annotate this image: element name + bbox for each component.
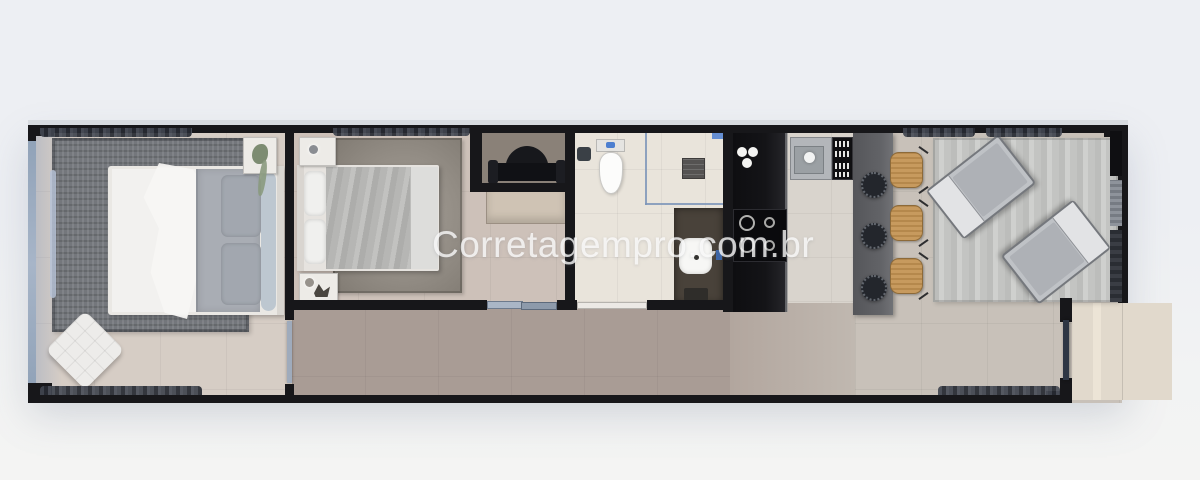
shower-glass-vertical <box>645 133 647 205</box>
bathroom-door <box>577 302 647 309</box>
bedroom1-headboard <box>277 166 284 315</box>
floor-plan-render: Corretagempro.com.br <box>0 0 1200 480</box>
right-wall-unit-bottom <box>1110 230 1122 302</box>
toilet-bowl <box>599 152 623 194</box>
living-curtain-bottom <box>938 386 1060 395</box>
terrace-door-stub-bottom <box>1060 378 1072 403</box>
bedroom2-sliding-door-pane1 <box>487 301 523 309</box>
bedroom1-curtain-top <box>40 128 192 137</box>
kitchen-lower-floor <box>730 303 855 403</box>
bedroom1-pillow-bottom <box>221 243 261 305</box>
oven-grate-4 <box>835 172 850 177</box>
oven-grate-3 <box>835 163 850 169</box>
plate-1 <box>737 147 747 157</box>
terrace-seam <box>1122 303 1123 400</box>
bedroom2-wardrobe <box>486 190 566 224</box>
hallway-floor <box>292 303 730 403</box>
terrace-stripe <box>1093 303 1101 400</box>
wall-hall-segment-a <box>292 300 487 310</box>
bedroom1-pillow-top <box>221 175 261 237</box>
bedroom2-lamp-bottom <box>305 278 314 287</box>
wall-bottom <box>28 395 1072 403</box>
bedroom2-headboard <box>297 165 304 271</box>
living-curtain-top-b <box>986 128 1062 137</box>
wall-left-window <box>28 125 36 403</box>
desk-chair-seat <box>492 163 562 181</box>
right-wall-unit-top <box>1110 131 1122 176</box>
bar-stool-1 <box>861 172 887 198</box>
wicker-chair-1 <box>890 152 923 188</box>
living-curtain-top-a <box>903 128 975 137</box>
wicker-chair-3 <box>890 258 923 294</box>
bedroom1-curtain-bottom <box>40 386 202 395</box>
terrace-door-stub-top <box>1060 298 1072 322</box>
watermark-text: Corretagempro.com.br <box>432 224 814 266</box>
terrace-door <box>1063 320 1069 380</box>
wall-bathroom-kitchen <box>723 125 733 312</box>
wicker-chair-2 <box>890 205 923 241</box>
bar-stool-3 <box>861 275 887 301</box>
plate-2 <box>748 147 758 157</box>
wall-bedroom1-divider-lower <box>285 384 294 403</box>
shower-glass-horizontal <box>645 203 725 205</box>
bedroom2-duvet <box>326 167 412 269</box>
plate-3 <box>742 158 752 168</box>
right-wall-unit-mid <box>1110 180 1122 226</box>
desk-chair-armrest-left <box>488 160 498 184</box>
bedroom1-curtain-left <box>50 170 56 298</box>
bar-stool-2 <box>861 223 887 249</box>
bedroom2-curtain-top <box>333 128 470 136</box>
bedroom1-bolster <box>261 172 276 311</box>
bedroom2-sliding-door-pane2 <box>521 302 557 310</box>
wall-bedroom1-divider-upper <box>285 125 294 320</box>
bedroom2-pillow-bottom <box>304 219 326 264</box>
wall-hall-segment-c <box>647 300 730 310</box>
wall-niche-vertical <box>470 125 482 192</box>
kitchen-faucet <box>804 152 815 163</box>
oven-grate-2 <box>835 151 850 157</box>
oven-grate-1 <box>835 141 850 147</box>
floor-drain <box>577 147 591 161</box>
bedroom2-pillow-top <box>304 171 326 216</box>
wall-niche-horizontal <box>470 183 566 192</box>
shower-drain-mat <box>682 158 705 179</box>
bedroom1-door <box>287 321 292 383</box>
wall-bedroom2-bathroom <box>565 125 575 310</box>
bedroom2-lamp-top <box>309 145 318 154</box>
toilet-flush-button <box>606 142 615 148</box>
